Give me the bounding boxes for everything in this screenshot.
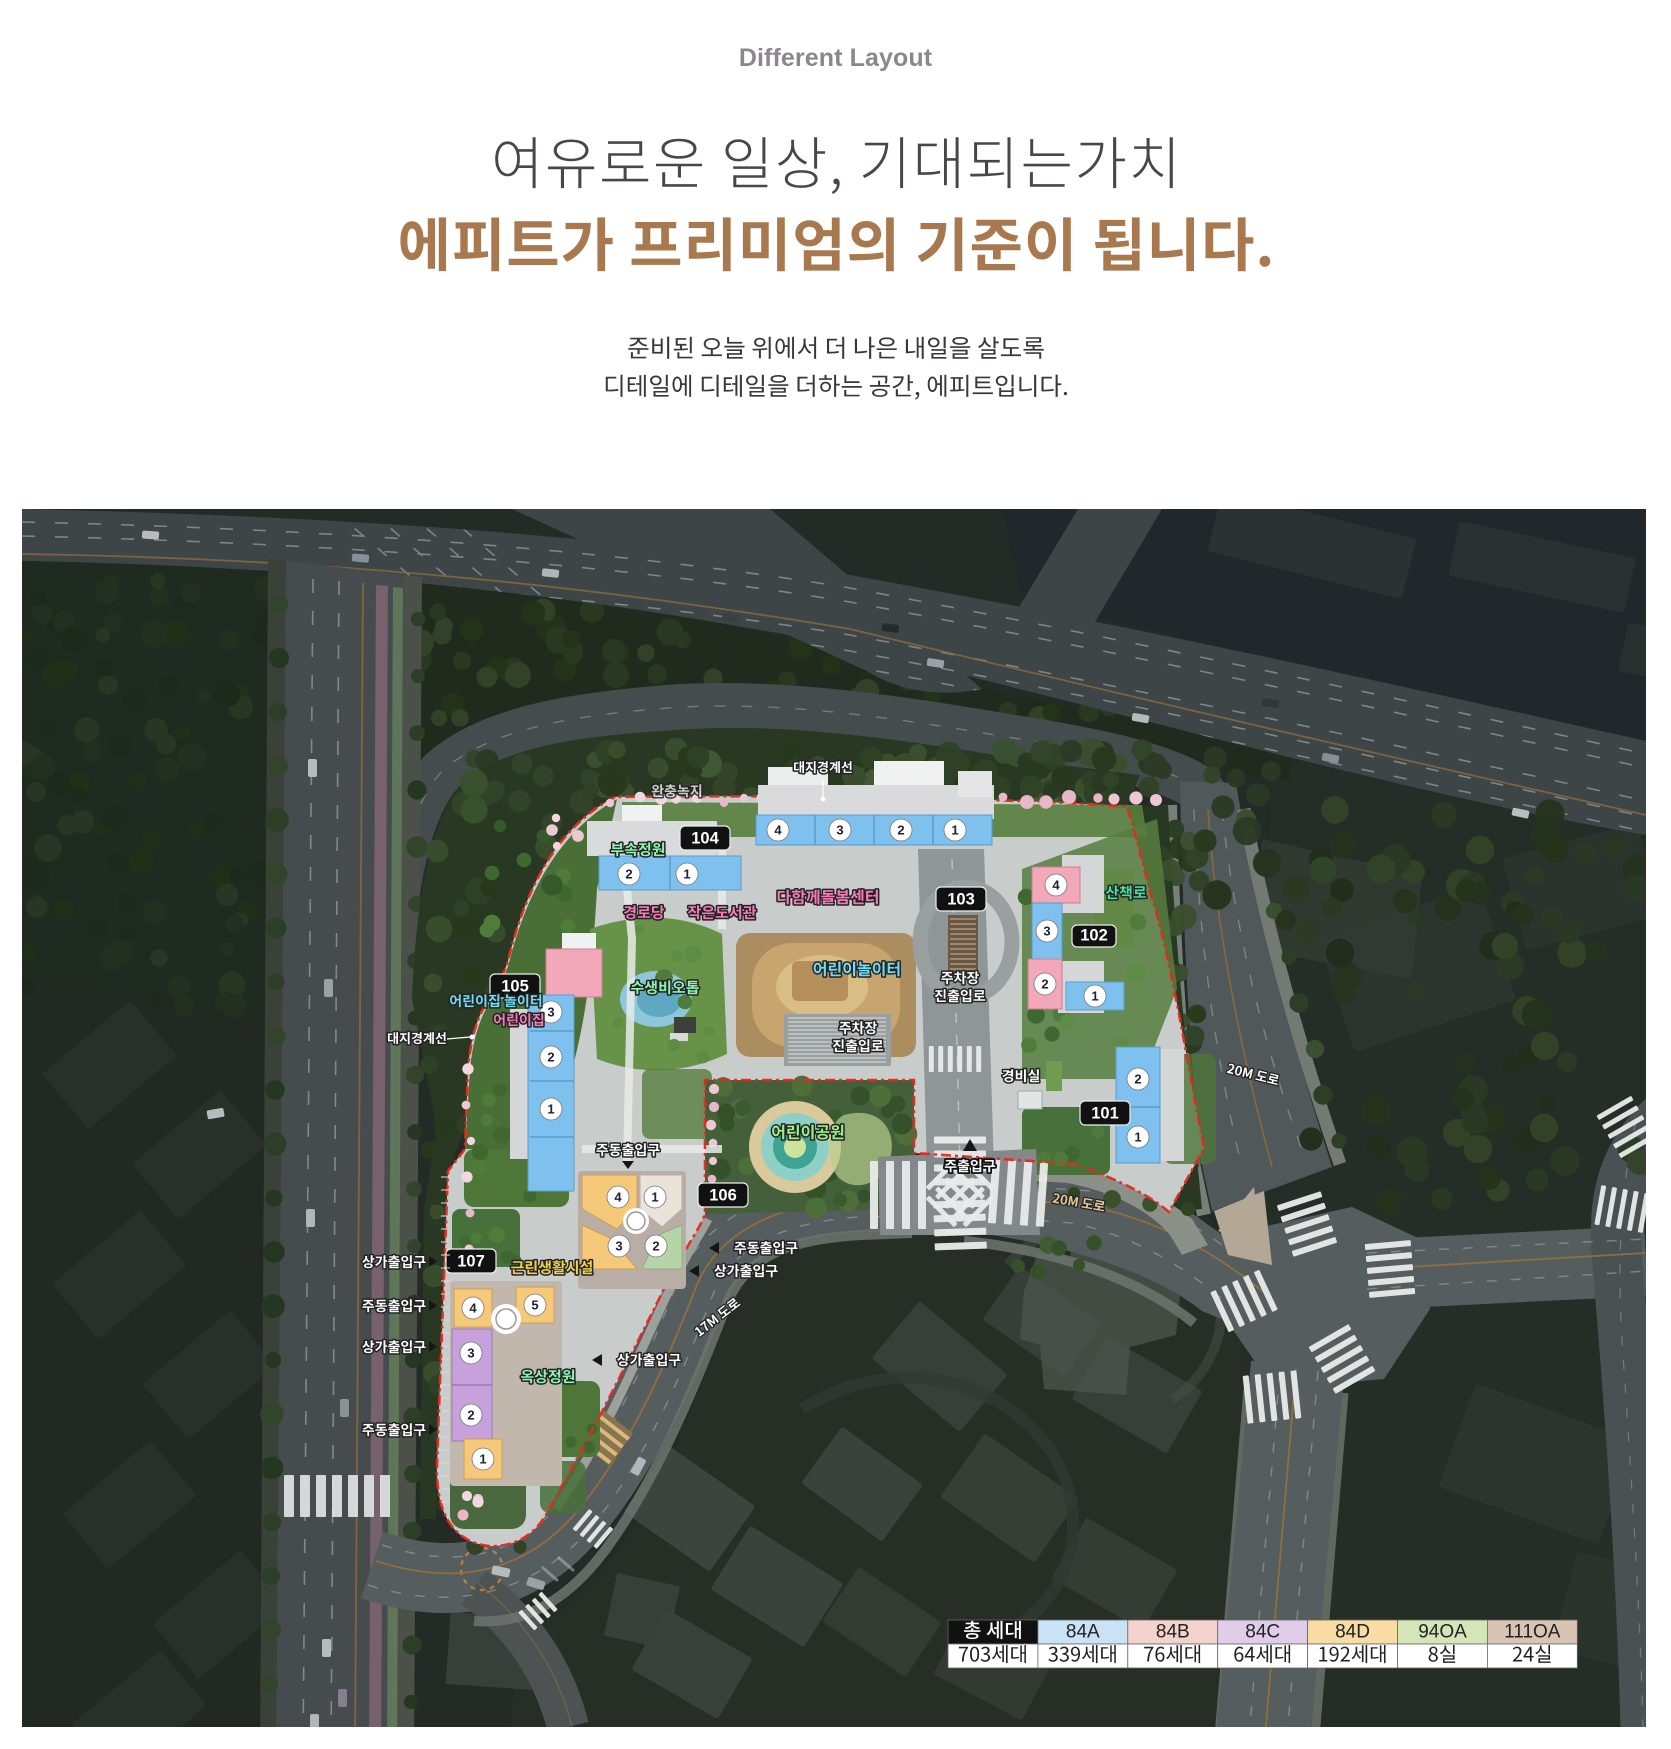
- svg-text:2: 2: [625, 867, 632, 882]
- svg-text:1: 1: [547, 1102, 554, 1117]
- svg-text:4: 4: [774, 823, 782, 838]
- svg-text:1: 1: [651, 1190, 658, 1205]
- svg-text:94OA: 94OA: [1418, 1622, 1467, 1643]
- svg-text:106: 106: [709, 1187, 737, 1205]
- svg-text:1: 1: [951, 823, 958, 838]
- svg-text:2: 2: [652, 1239, 659, 1254]
- svg-text:105: 105: [501, 978, 529, 996]
- svg-text:107: 107: [457, 1253, 485, 1271]
- svg-text:4: 4: [469, 1301, 477, 1316]
- svg-text:84C: 84C: [1245, 1622, 1280, 1643]
- svg-text:3: 3: [467, 1346, 474, 1361]
- svg-text:3: 3: [615, 1239, 622, 1254]
- svg-text:1: 1: [1134, 1130, 1141, 1145]
- svg-text:1: 1: [683, 867, 690, 882]
- svg-text:2: 2: [897, 823, 904, 838]
- svg-text:4: 4: [1052, 878, 1060, 893]
- svg-text:1: 1: [479, 1452, 486, 1467]
- svg-text:4: 4: [614, 1190, 622, 1205]
- svg-text:84A: 84A: [1066, 1622, 1100, 1643]
- svg-text:2: 2: [1041, 977, 1048, 992]
- svg-text:5: 5: [531, 1298, 538, 1313]
- svg-text:101: 101: [1091, 1105, 1119, 1123]
- svg-text:2: 2: [467, 1408, 474, 1423]
- svg-text:102: 102: [1080, 927, 1108, 945]
- svg-text:84B: 84B: [1156, 1622, 1190, 1643]
- svg-text:3: 3: [547, 1005, 554, 1020]
- svg-text:1: 1: [1091, 989, 1098, 1004]
- svg-text:84D: 84D: [1335, 1622, 1370, 1643]
- svg-text:111OA: 111OA: [1504, 1622, 1561, 1643]
- svg-text:2: 2: [1134, 1072, 1141, 1087]
- svg-text:3: 3: [1043, 924, 1050, 939]
- svg-text:2: 2: [547, 1050, 554, 1065]
- svg-text:3: 3: [836, 823, 843, 838]
- svg-text:103: 103: [947, 891, 975, 909]
- svg-text:104: 104: [691, 830, 719, 848]
